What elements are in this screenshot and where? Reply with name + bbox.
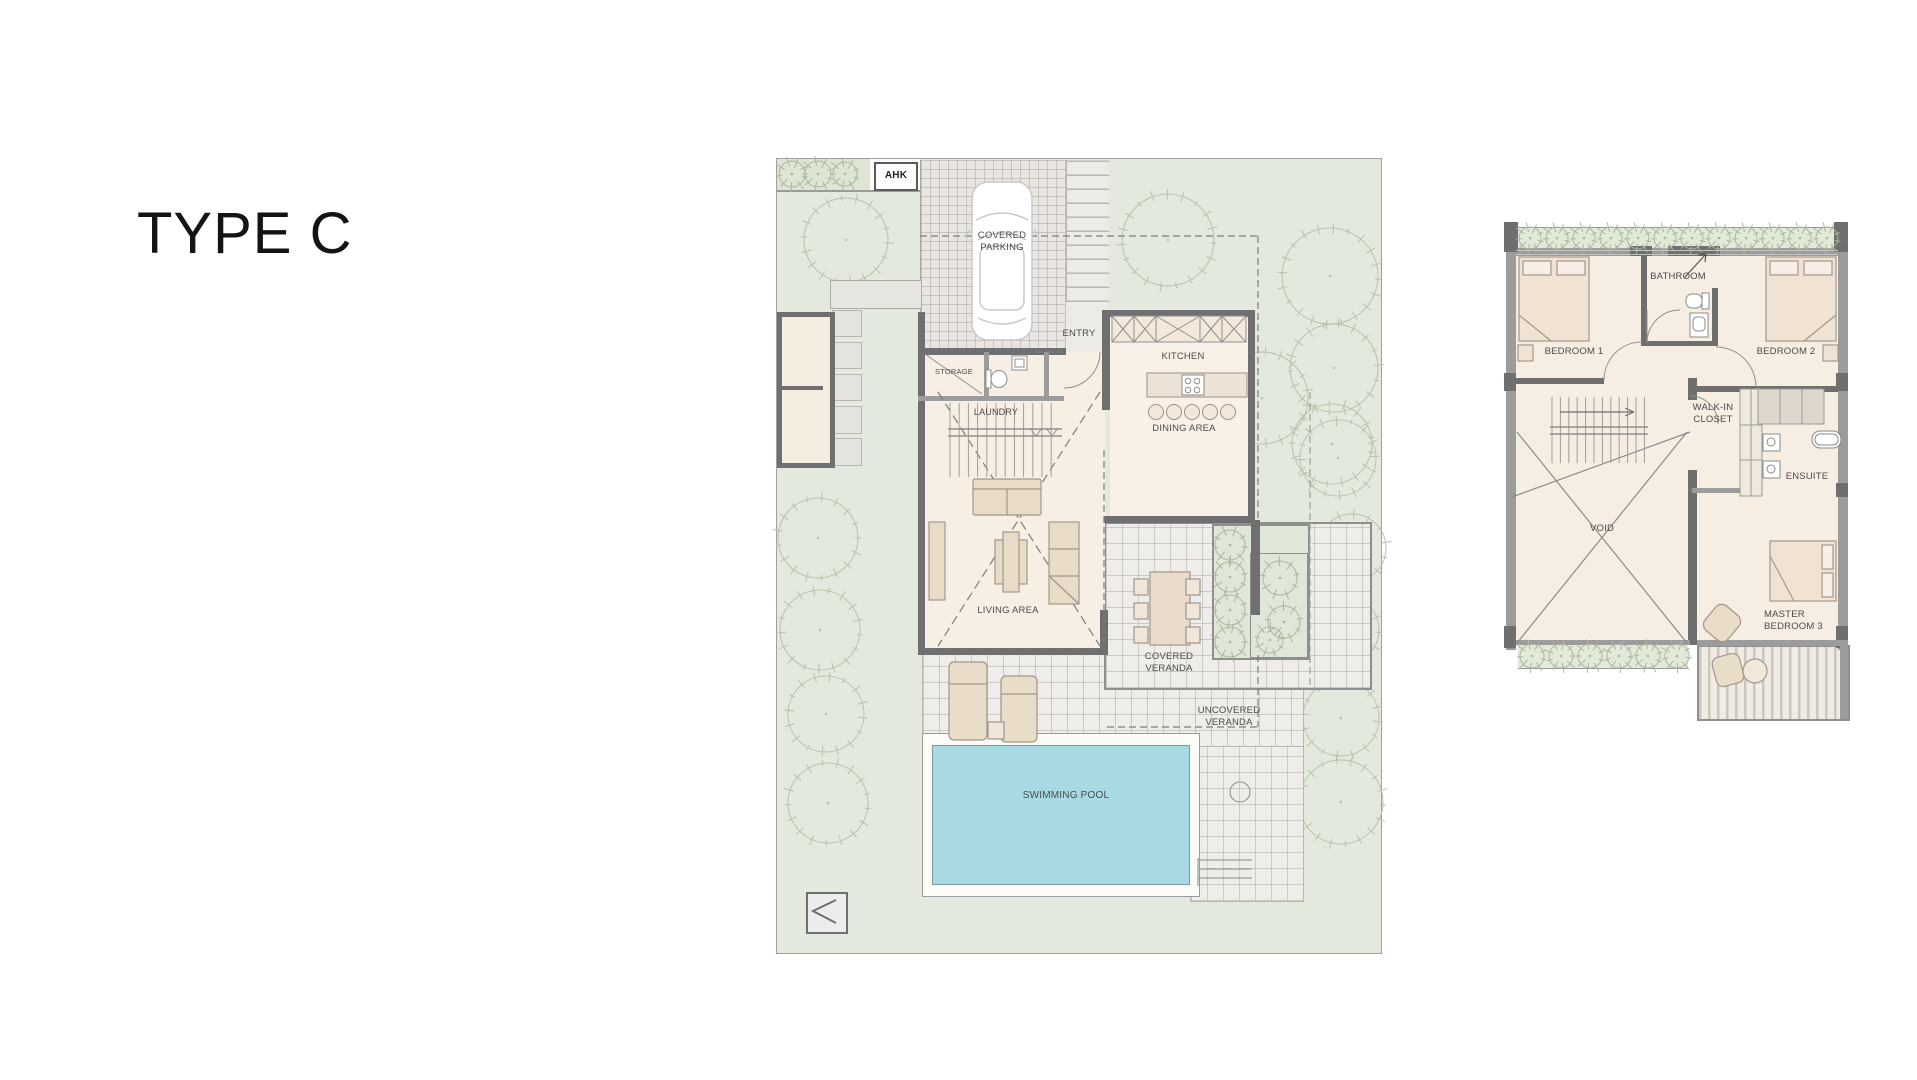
outdoor-shower-icon: [1230, 782, 1250, 802]
label-bathroom: BATHROOM: [1618, 271, 1738, 283]
ff-window-lines: [1516, 251, 1838, 255]
pool-steps: [1198, 858, 1252, 886]
label-bedroom-2: BEDROOM 2: [1726, 346, 1846, 358]
ff-doors-void: [1512, 310, 1756, 643]
label-living-area: LIVING AREA: [948, 605, 1068, 617]
floor-plan-sheet: TYPE C AHK: [0, 0, 1917, 1080]
label-covered-parking: COVERED PARKING: [966, 230, 1038, 254]
gate-chevron-icon: [813, 900, 836, 923]
label-dining-area: DINING AREA: [1124, 423, 1244, 435]
label-storage: STORAGE: [924, 367, 984, 377]
label-kitchen: KITCHEN: [1123, 351, 1243, 363]
plan-linework: [0, 0, 1917, 1080]
label-ensuite: ENSUITE: [1747, 471, 1867, 483]
living-furniture: [929, 479, 1079, 604]
label-walk-in-closet: WALK-IN CLOSET: [1682, 402, 1744, 426]
ff-chairs: [1700, 601, 1767, 688]
car-icon: [965, 182, 1039, 340]
label-swimming-pool: SWIMMING POOL: [1006, 790, 1126, 803]
gf-detail: [925, 352, 1100, 436]
ff-beds: [1518, 257, 1838, 601]
label-covered-veranda: COVERED VERANDA: [1129, 651, 1209, 675]
label-laundry: LAUNDRY: [966, 407, 1026, 419]
label-master-bedroom-3: MASTER BEDROOM 3: [1764, 609, 1836, 633]
label-bedroom-1: BEDROOM 1: [1514, 346, 1634, 358]
kitchen-cabinets: [1112, 316, 1247, 420]
label-entry: ENTRY: [1049, 328, 1109, 340]
label-uncovered-veranda: UNCOVERED VERANDA: [1192, 705, 1266, 729]
label-void: VOID: [1542, 523, 1662, 535]
